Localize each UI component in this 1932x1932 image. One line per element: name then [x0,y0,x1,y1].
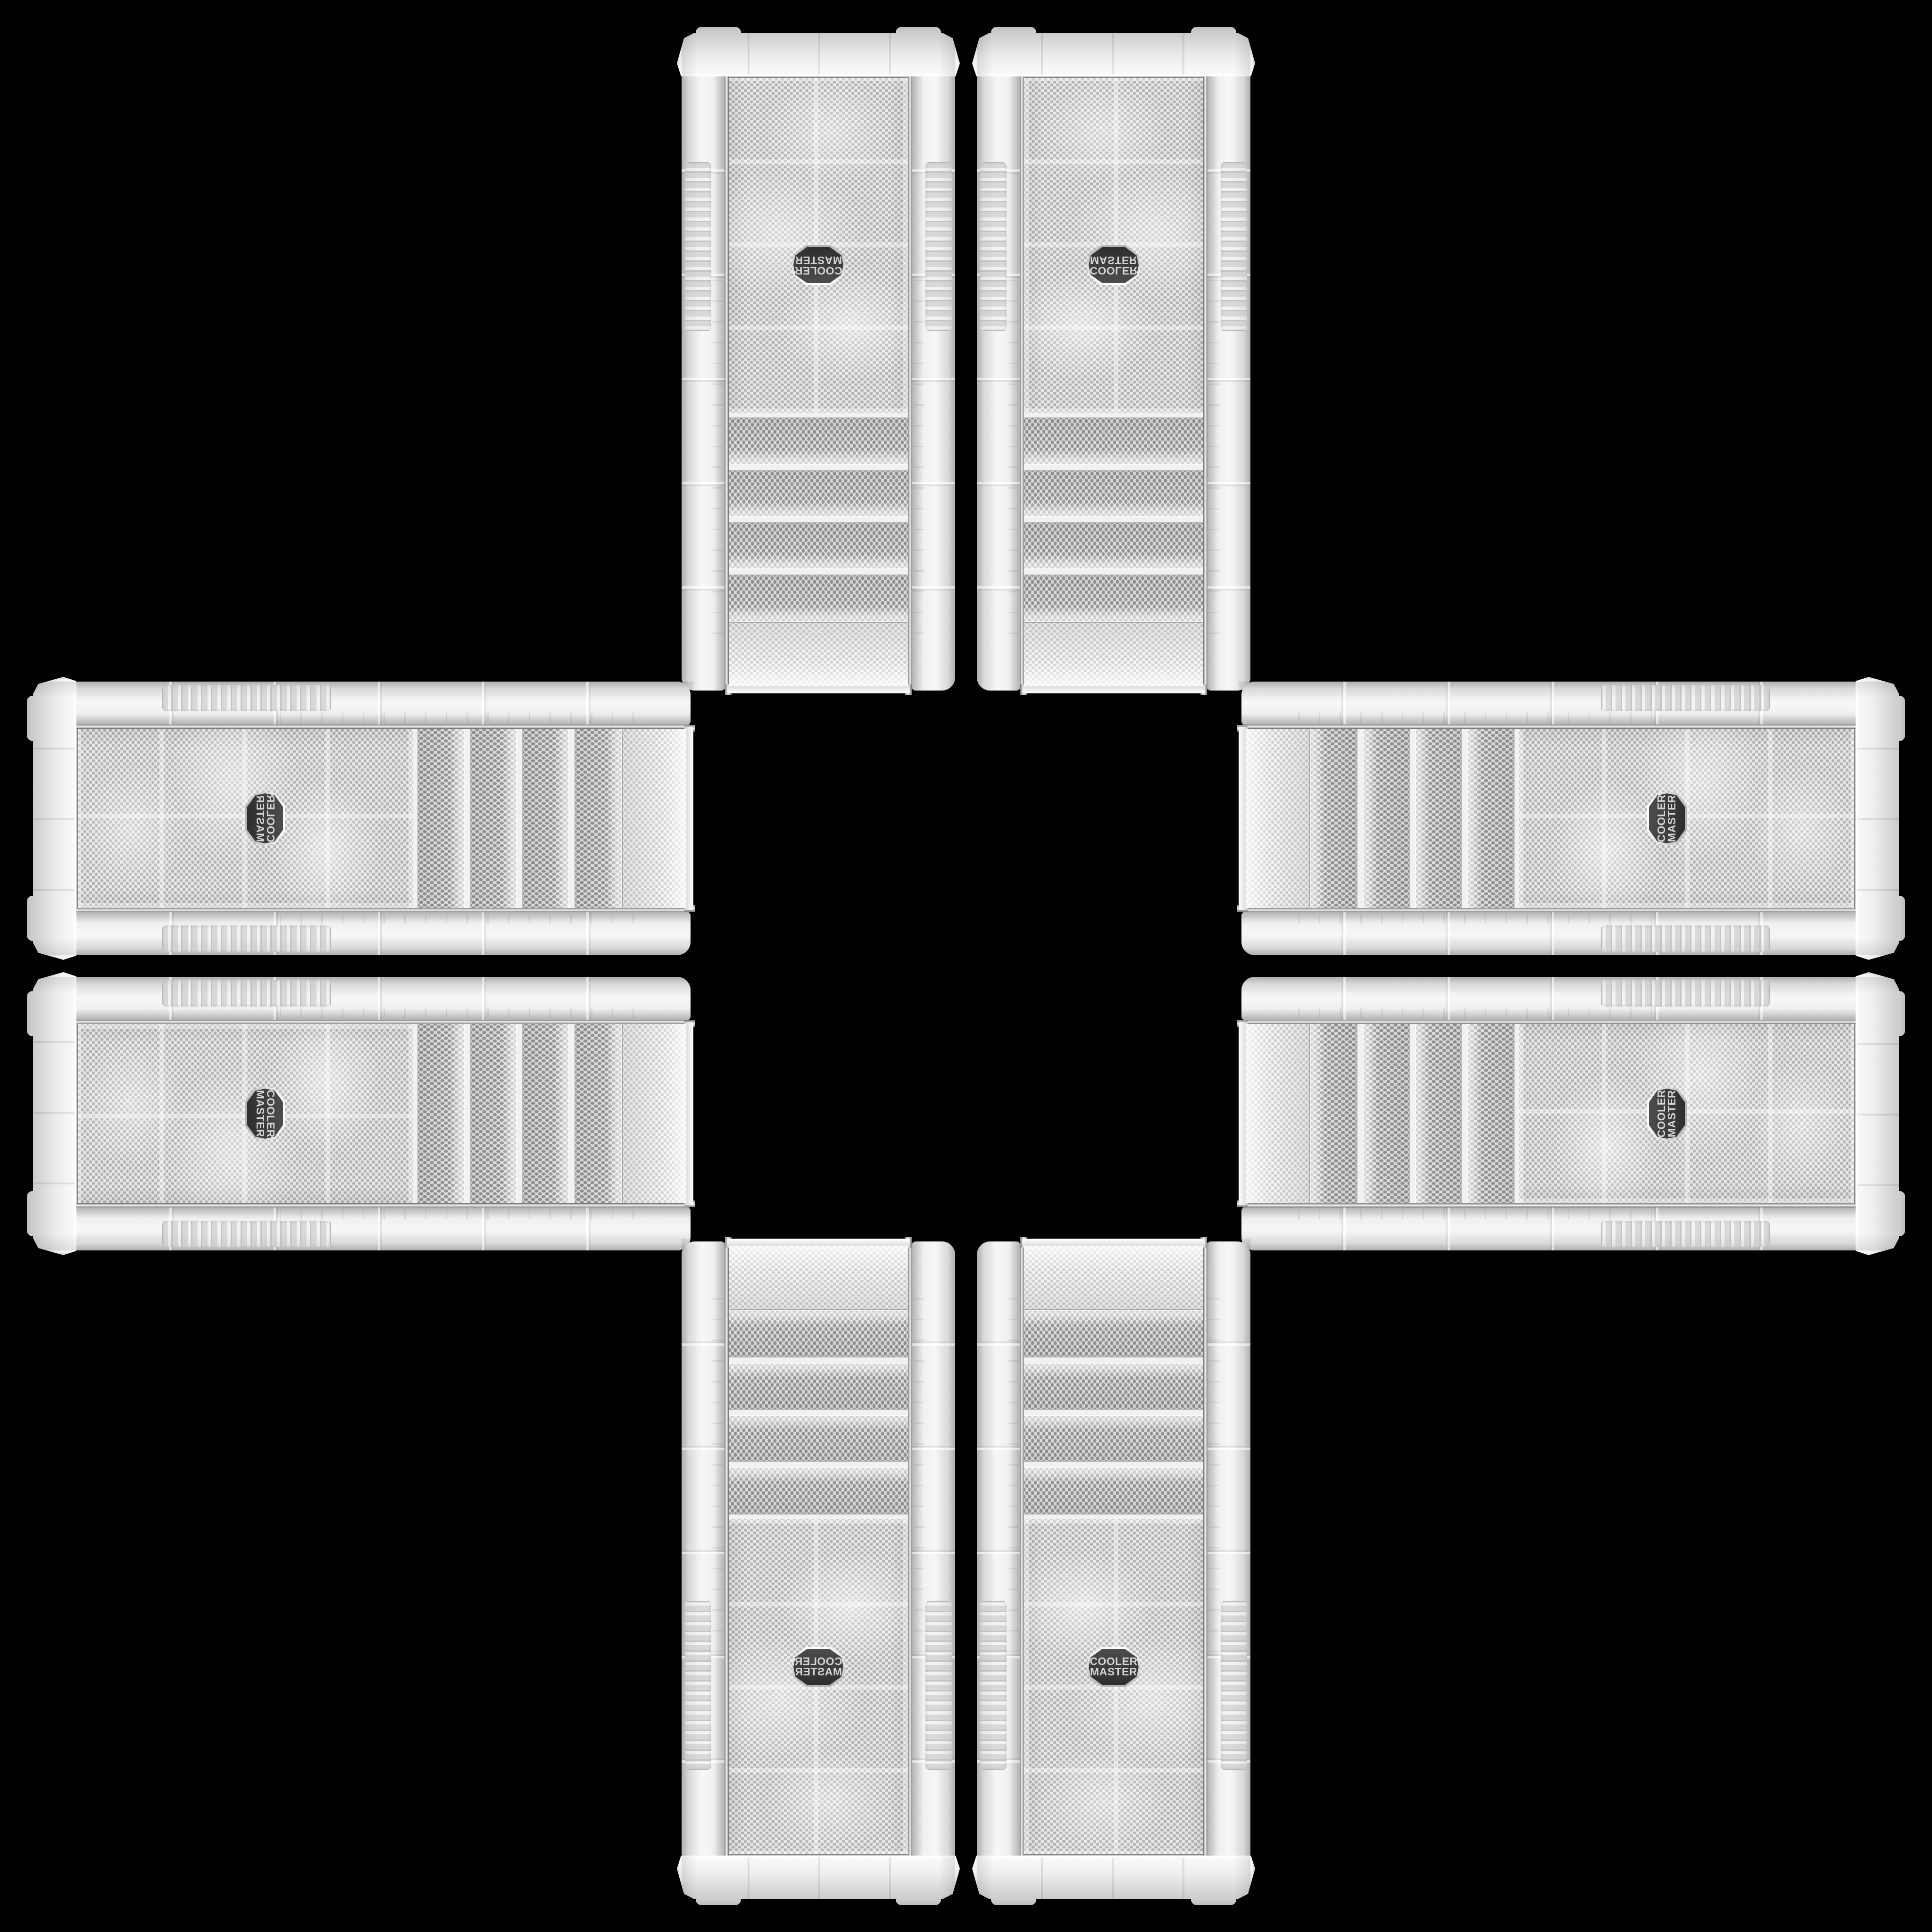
brand-line1: COOLER [265,794,275,842]
rail-vent-ribs [162,980,331,1007]
case-horizontal-right-bottom: COOLER MASTER [1239,977,1899,1250]
chrome-trim-right [1242,1020,1857,1024]
case-rotation-wrapper: COOLER MASTER [977,1239,1250,1899]
rail-vent-ribs [685,1601,711,1770]
case-rotation-wrapper: COOLER MASTER [33,682,693,955]
drive-bay-covers [729,1310,908,1519]
bay-cover-band [729,1467,908,1515]
brand-line1: COOLER [794,265,842,275]
front-mesh-panel: COOLER MASTER [1024,1239,1203,1854]
mesh-main-area: COOLER MASTER [729,78,908,413]
rail-vent-ribs [1601,685,1770,711]
case-tower-bottom-left: COOLER MASTER [682,1239,955,1899]
bay-cover-band [417,1024,465,1203]
cooler-master-badge: COOLER MASTER [1647,1087,1687,1141]
pc-case: COOLER MASTER [977,1239,1250,1899]
rail-vent-ribs [162,925,331,952]
pc-case: COOLER MASTER [33,682,693,955]
bay-cover-band [575,1024,622,1203]
chrome-trim-left [1242,1203,1857,1207]
drive-bay-covers [1024,1310,1203,1519]
mesh-main-area: COOLER MASTER [78,1024,413,1203]
chrome-trim-left [1242,908,1857,912]
chrome-trim-left [908,75,912,690]
drive-bay-covers [1024,413,1203,622]
bay-cover-band [522,1024,569,1203]
cooler-master-badge-face: COOLER MASTER [793,1649,843,1685]
cooler-master-badge: COOLER MASTER [1087,245,1141,285]
case-rotation-wrapper: COOLER MASTER [682,33,955,693]
bay-cover-band [1024,1467,1203,1515]
case-side-rail-right [1241,682,1858,725]
mesh-main-area: COOLER MASTER [1024,1519,1203,1854]
case-side-rail-left [1241,912,1858,955]
rail-chevron-notches [1209,1298,1220,1666]
mesh-main-area: COOLER MASTER [729,1519,908,1854]
bay-cover-band [1363,1024,1410,1203]
cooler-master-badge-face: COOLER MASTER [1649,793,1685,843]
case-top-lip [727,1239,910,1246]
case-horizontal-left-top: COOLER MASTER [33,682,693,955]
rail-vent-ribs [162,1221,331,1247]
bay-cover-band [1024,1415,1203,1462]
bay-cover-band [729,575,908,622]
case-bottom-cap [677,33,960,76]
cooler-master-badge: COOLER MASTER [245,1087,285,1141]
cooler-master-badge: COOLER MASTER [791,245,845,285]
case-side-rail-right [1207,74,1250,691]
mesh-top-curve-band [1239,1024,1310,1203]
mesh-top-curve-band [729,622,908,693]
front-mesh-panel: COOLER MASTER [729,1239,908,1854]
case-bottom-cap [677,1856,960,1899]
cooler-master-badge-face: COOLER MASTER [247,793,283,843]
bay-cover-band [729,1310,908,1357]
rail-vent-ribs [980,1601,1007,1770]
cooler-master-badge: COOLER MASTER [1087,1647,1141,1687]
drive-bay-covers [413,729,622,908]
case-bottom-cap [1856,677,1899,960]
mesh-main-area: COOLER MASTER [1519,729,1854,908]
pc-case: COOLER MASTER [682,1239,955,1899]
brand-line2: MASTER [1090,1667,1137,1677]
pc-case: COOLER MASTER [977,33,1250,693]
rail-chevron-notches [712,1298,723,1666]
cooler-master-badge-face: COOLER MASTER [1649,1089,1685,1139]
drive-bay-covers [729,413,908,622]
case-top-lip [1239,727,1246,910]
case-tower-top-right: COOLER MASTER [977,33,1250,693]
case-side-rail-right [74,682,691,725]
chrome-trim-left [908,1242,912,1857]
rail-chevron-notches [1209,266,1220,634]
case-side-rail-right [74,1207,691,1250]
case-rotation-wrapper: COOLER MASTER [33,977,693,1250]
drive-bay-covers [1310,729,1519,908]
pc-case: COOLER MASTER [682,33,955,693]
brand-text: COOLER MASTER [794,1657,842,1677]
chrome-trim-right [1203,75,1207,690]
case-side-rail-left [1241,1207,1858,1250]
chrome-trim-right [1203,1242,1207,1857]
brand-line1: COOLER [265,1090,275,1137]
bay-cover-band [417,729,465,908]
bay-cover-band [470,1024,517,1203]
case-bottom-cap [33,972,76,1255]
cooler-master-badge-face: COOLER MASTER [1089,247,1139,283]
case-bottom-cap [972,33,1255,76]
mesh-top-curve-band [1239,729,1310,908]
bay-cover-band [1310,729,1357,908]
case-top-lip [1022,686,1205,693]
brand-line2: MASTER [1667,794,1677,842]
front-mesh-panel: COOLER MASTER [1024,78,1203,693]
cooler-master-badge: COOLER MASTER [245,791,285,845]
rail-chevron-notches [266,712,634,723]
chrome-trim-left [1020,75,1024,690]
case-top-lip [727,686,910,693]
case-bottom-cap [33,677,76,960]
rail-vent-ribs [925,162,952,331]
pc-case: COOLER MASTER [1239,682,1899,955]
bay-cover-band [1467,729,1515,908]
rail-vent-ribs [925,1601,952,1770]
case-side-rail-right [1207,1241,1250,1858]
bay-cover-band [1024,470,1203,517]
front-mesh-panel: COOLER MASTER [729,78,908,693]
rail-vent-ribs [1221,1601,1247,1770]
cooler-master-badge: COOLER MASTER [1647,791,1687,845]
chrome-trim-left [75,908,690,912]
drive-bay-covers [1310,1024,1519,1203]
chrome-trim-right [724,1242,729,1857]
rail-vent-ribs [1601,980,1770,1007]
case-top-lip [686,727,693,910]
cooler-master-badge-face: COOLER MASTER [247,1089,283,1139]
case-rotation-wrapper: COOLER MASTER [682,1239,955,1899]
rail-chevron-notches [266,1209,634,1220]
pc-case: COOLER MASTER [33,977,693,1250]
bay-cover-band [729,522,908,569]
chrome-trim-left [75,1020,690,1024]
bay-cover-band [729,1363,908,1410]
rail-chevron-notches [1298,712,1666,723]
chrome-trim-right [1242,724,1857,729]
brand-text: COOLER MASTER [794,255,842,275]
bay-cover-band [1024,417,1203,465]
brand-text: COOLER MASTER [255,1090,275,1137]
bay-cover-band [1415,729,1462,908]
case-side-rail-left [912,74,955,691]
mesh-main-area: COOLER MASTER [1519,1024,1854,1203]
rail-chevron-notches [1298,1008,1666,1018]
chrome-trim-right [724,75,729,690]
rail-chevron-notches [712,266,723,634]
bay-cover-band [470,729,517,908]
bay-cover-band [1310,1024,1357,1203]
rail-chevron-notches [1008,266,1018,634]
rail-chevron-notches [1298,1209,1666,1220]
front-mesh-panel: COOLER MASTER [78,729,693,908]
rail-vent-ribs [1601,1221,1770,1247]
front-mesh-panel: COOLER MASTER [1239,729,1854,908]
bay-cover-band [1363,729,1410,908]
brand-text: COOLER MASTER [1090,255,1137,275]
brand-line2: MASTER [255,794,265,842]
bay-cover-band [1024,522,1203,569]
rail-chevron-notches [914,266,924,634]
case-side-rail-right [682,1241,725,1858]
case-horizontal-right-top: COOLER MASTER [1239,682,1899,955]
rail-chevron-notches [266,914,634,924]
case-top-lip [1239,1022,1246,1205]
brand-text: COOLER MASTER [1090,1657,1137,1677]
case-tower-top-left: COOLER MASTER [682,33,955,693]
brand-line2: MASTER [794,255,842,265]
case-side-rail-left [912,1241,955,1858]
cooler-master-badge: COOLER MASTER [791,1647,845,1687]
drive-bay-covers [413,1024,622,1203]
case-rotation-wrapper: COOLER MASTER [977,33,1250,693]
mesh-top-curve-band [729,1239,908,1310]
rail-chevron-notches [1008,1298,1018,1666]
rail-vent-ribs [162,685,331,711]
mesh-main-area: COOLER MASTER [78,729,413,908]
cooler-master-badge-face: COOLER MASTER [1089,1649,1139,1685]
case-bottom-cap [972,1856,1255,1899]
brand-line2: MASTER [794,1667,842,1677]
case-side-rail-right [682,74,725,691]
pc-case: COOLER MASTER [1239,977,1899,1250]
case-side-rail-left [74,912,691,955]
rail-chevron-notches [1298,914,1666,924]
bay-cover-band [575,729,622,908]
bay-cover-band [522,729,569,908]
rail-vent-ribs [980,162,1007,331]
mesh-top-curve-band [622,729,693,908]
brand-text: COOLER MASTER [1657,1090,1677,1137]
bay-cover-band [1415,1024,1462,1203]
case-rotation-wrapper: COOLER MASTER [1239,682,1899,955]
rail-vent-ribs [1601,925,1770,952]
bay-cover-band [729,470,908,517]
case-tower-bottom-right: COOLER MASTER [977,1239,1250,1899]
case-horizontal-left-bottom: COOLER MASTER [33,977,693,1250]
bay-cover-band [1024,1310,1203,1357]
mesh-main-area: COOLER MASTER [1024,78,1203,413]
bay-cover-band [729,417,908,465]
brand-text: COOLER MASTER [1657,794,1677,842]
chrome-trim-left [1020,1242,1024,1857]
case-top-lip [1022,1239,1205,1246]
bay-cover-band [1024,1363,1203,1410]
case-side-rail-left [977,1241,1020,1858]
case-bottom-cap [1856,972,1899,1255]
case-rotation-wrapper: COOLER MASTER [1239,977,1899,1250]
front-mesh-panel: COOLER MASTER [78,1024,693,1203]
case-side-rail-left [74,977,691,1020]
case-side-rail-left [977,74,1020,691]
case-side-rail-right [1241,977,1858,1020]
bay-cover-band [1024,575,1203,622]
rail-vent-ribs [685,162,711,331]
front-mesh-panel: COOLER MASTER [1239,1024,1854,1203]
brand-line1: COOLER [1090,265,1137,275]
mesh-top-curve-band [622,1024,693,1203]
brand-line2: MASTER [1667,1090,1677,1137]
mesh-top-curve-band [1024,622,1203,693]
bay-cover-band [729,1415,908,1462]
case-top-lip [686,1022,693,1205]
cooler-master-badge-face: COOLER MASTER [793,247,843,283]
rail-vent-ribs [1221,162,1247,331]
brand-text: COOLER MASTER [255,794,275,842]
rail-chevron-notches [266,1008,634,1018]
brand-line2: MASTER [255,1090,265,1137]
chrome-trim-right [75,1203,690,1207]
rail-chevron-notches [914,1298,924,1666]
chrome-trim-right [75,724,690,729]
bay-cover-band [1467,1024,1515,1203]
brand-line2: MASTER [1090,255,1137,265]
mesh-top-curve-band [1024,1239,1203,1310]
product-collage: COOLER MASTER [0,0,1932,1932]
